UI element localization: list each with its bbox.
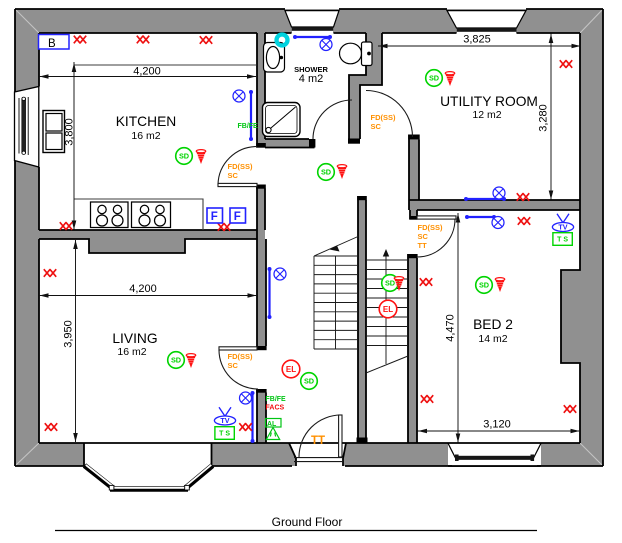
svg-text:16 m2: 16 m2 [131, 130, 160, 142]
svg-text:3,280: 3,280 [538, 104, 550, 132]
svg-text:FB/FE: FB/FE [266, 396, 287, 403]
svg-text:FD(SS): FD(SS) [228, 162, 254, 171]
svg-text:4,200: 4,200 [129, 283, 157, 295]
svg-text:3,800: 3,800 [64, 118, 76, 146]
svg-text:TT: TT [311, 435, 325, 447]
svg-text:AL: AL [267, 421, 277, 428]
svg-text:LIVING: LIVING [112, 331, 157, 346]
svg-text:SC: SC [418, 232, 429, 241]
svg-text:16 m2: 16 m2 [117, 346, 146, 358]
svg-text:4 m2: 4 m2 [299, 73, 323, 85]
svg-text:SC: SC [228, 361, 239, 370]
svg-text:3,950: 3,950 [63, 320, 75, 348]
svg-text:4,470: 4,470 [445, 314, 457, 342]
svg-text:4,200: 4,200 [133, 66, 161, 78]
svg-text:F: F [211, 211, 218, 223]
svg-text:SC: SC [228, 171, 239, 180]
svg-text:12 m2: 12 m2 [472, 109, 501, 121]
svg-text:BED 2: BED 2 [473, 317, 513, 332]
svg-text:FACS: FACS [266, 405, 285, 412]
svg-text:FD(SS): FD(SS) [228, 352, 254, 361]
svg-text:KITCHEN: KITCHEN [116, 114, 177, 129]
svg-text:B: B [48, 38, 56, 50]
svg-text:TT: TT [418, 241, 428, 250]
svg-text:SC: SC [371, 122, 382, 131]
svg-text:Ground Floor: Ground Floor [272, 515, 343, 529]
svg-text:F: F [234, 211, 241, 223]
svg-text:FD(SS): FD(SS) [371, 113, 397, 122]
svg-text:3,120: 3,120 [483, 419, 511, 431]
svg-text:FD(SS): FD(SS) [418, 223, 444, 232]
svg-text:UTILITY ROOM: UTILITY ROOM [440, 94, 538, 109]
svg-text:3,825: 3,825 [463, 34, 491, 46]
svg-text:FB/FE: FB/FE [238, 123, 259, 130]
svg-text:14 m2: 14 m2 [478, 333, 507, 345]
